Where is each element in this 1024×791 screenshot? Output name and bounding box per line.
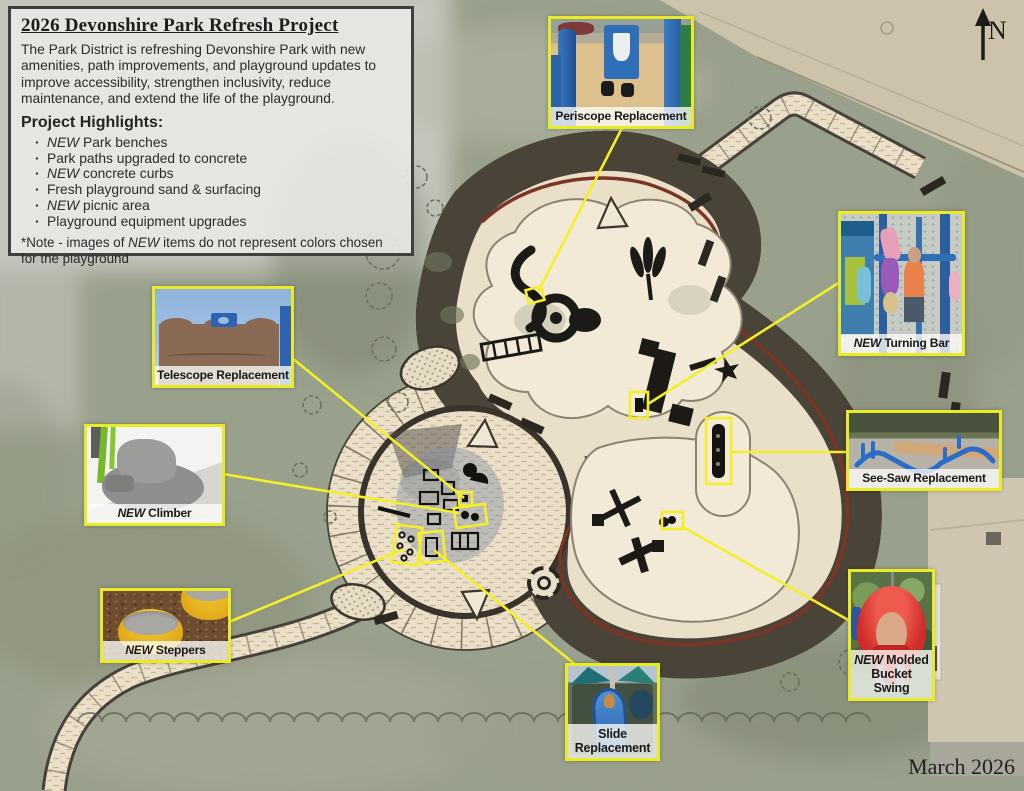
callout-bucket-swing: NEW Molded Bucket Swing: [848, 569, 935, 701]
project-description: The Park District is refreshing Devonshi…: [21, 42, 401, 108]
park-flyer: 2026 Devonshire Park Refresh Project The…: [0, 0, 1024, 791]
callout-label: NEW Molded Bucket Swing: [851, 650, 932, 698]
callout-label: NEW Climber: [87, 504, 222, 523]
highlight-item: Fresh playground sand & surfacing: [35, 182, 401, 198]
highlight-item: NEW picnic area: [35, 198, 401, 214]
callout-label: NEW Turning Bar: [841, 334, 962, 353]
highlight-item: NEW concrete curbs: [35, 166, 401, 182]
highlights-heading: Project Highlights:: [21, 114, 401, 132]
project-title: 2026 Devonshire Park Refresh Project: [21, 15, 401, 37]
spinner-symbol: [529, 568, 559, 598]
highlight-item: Park paths upgraded to concrete: [35, 151, 401, 167]
callout-steppers: NEW Steppers: [100, 588, 231, 663]
callout-see-saw: See-Saw Replacement: [846, 410, 1002, 491]
periscope-handle: [621, 83, 634, 97]
periscope-handle: [601, 81, 614, 96]
north-arrow: N: [966, 4, 1018, 66]
turning-bar-photo: [841, 214, 962, 353]
callout-telescope: Telescope Replacement: [152, 286, 294, 388]
callout-periscope: Periscope Replacement: [548, 16, 694, 129]
callout-label: NEW Steppers: [103, 641, 228, 660]
callout-slide: Slide Replacement: [565, 663, 660, 761]
periscope-body: [604, 25, 639, 79]
green-post: [109, 427, 116, 469]
callout-label: Telescope Replacement: [155, 366, 291, 385]
highlight-item: Playground equipment upgrades: [35, 214, 401, 230]
date-label: March 2026: [903, 754, 1015, 780]
callout-turning-bar: NEW Turning Bar: [838, 211, 965, 356]
callout-label: Periscope Replacement: [551, 107, 691, 126]
project-info-box: 2026 Devonshire Park Refresh Project The…: [8, 6, 414, 256]
color-disclaimer-note: *Note - images of NEW items do not repre…: [21, 235, 401, 267]
callout-climber: NEW Climber: [84, 424, 225, 526]
telescope-bracket: [211, 313, 237, 327]
callout-label: See-Saw Replacement: [849, 469, 999, 488]
climber-step: [105, 475, 135, 492]
see-saw-plan-symbol: [712, 424, 725, 478]
shade-sail: [618, 666, 655, 684]
north-label: N: [988, 16, 1007, 46]
highlights-list: NEW Park benches Park paths upgraded to …: [21, 135, 401, 230]
highlight-item: NEW Park benches: [35, 135, 401, 151]
callout-label: Slide Replacement: [568, 724, 657, 758]
stepper-dome: [181, 588, 232, 620]
